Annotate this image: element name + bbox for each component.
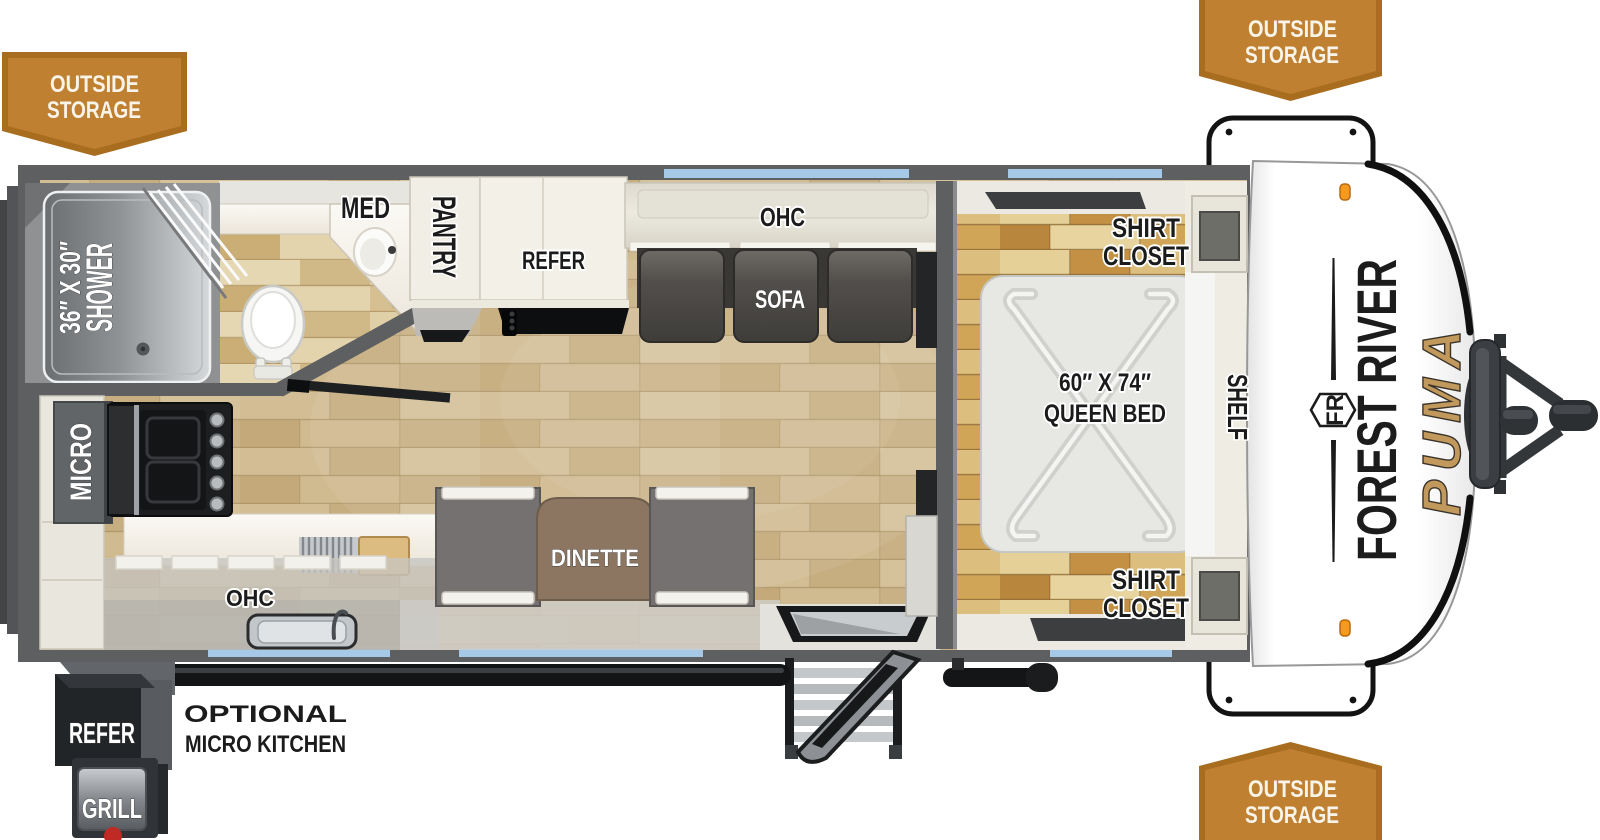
svg-text:FOREST RIVER: FOREST RIVER [1345,259,1408,561]
svg-text:QUEEN BED: QUEEN BED [1044,400,1166,428]
svg-text:SHIRT: SHIRT [1112,213,1180,243]
svg-text:60″ X 74″: 60″ X 74″ [1059,369,1151,397]
svg-text:OPTIONAL: OPTIONAL [184,701,347,728]
svg-text:OHC: OHC [760,202,805,232]
svg-text:OUTSIDE: OUTSIDE [50,71,139,98]
svg-text:PANTRY: PANTRY [426,196,462,278]
svg-text:MED: MED [341,192,390,225]
svg-text:CLOSET: CLOSET [1103,593,1189,623]
svg-text:OUTSIDE: OUTSIDE [1248,16,1337,43]
svg-text:STORAGE: STORAGE [1245,42,1339,69]
svg-text:MICRO: MICRO [65,423,98,501]
svg-text:GRILL: GRILL [82,793,142,824]
svg-text:SHIRT: SHIRT [1112,565,1180,595]
svg-text:MICRO KITCHEN: MICRO KITCHEN [185,731,346,758]
svg-text:REFER: REFER [69,718,135,750]
svg-text:OHC: OHC [226,585,274,611]
svg-text:DINETTE: DINETTE [551,545,639,572]
svg-text:SOFA: SOFA [755,286,805,314]
svg-text:SHELF: SHELF [1222,374,1253,440]
svg-text:STORAGE: STORAGE [47,97,141,124]
svg-text:OUTSIDE: OUTSIDE [1248,776,1337,803]
svg-text:CLOSET: CLOSET [1103,241,1189,271]
svg-text:REFER: REFER [522,247,585,275]
svg-text:PUMA: PUMA [1412,330,1472,516]
svg-text:SHOWER: SHOWER [79,243,120,332]
svg-text:STORAGE: STORAGE [1245,802,1339,829]
